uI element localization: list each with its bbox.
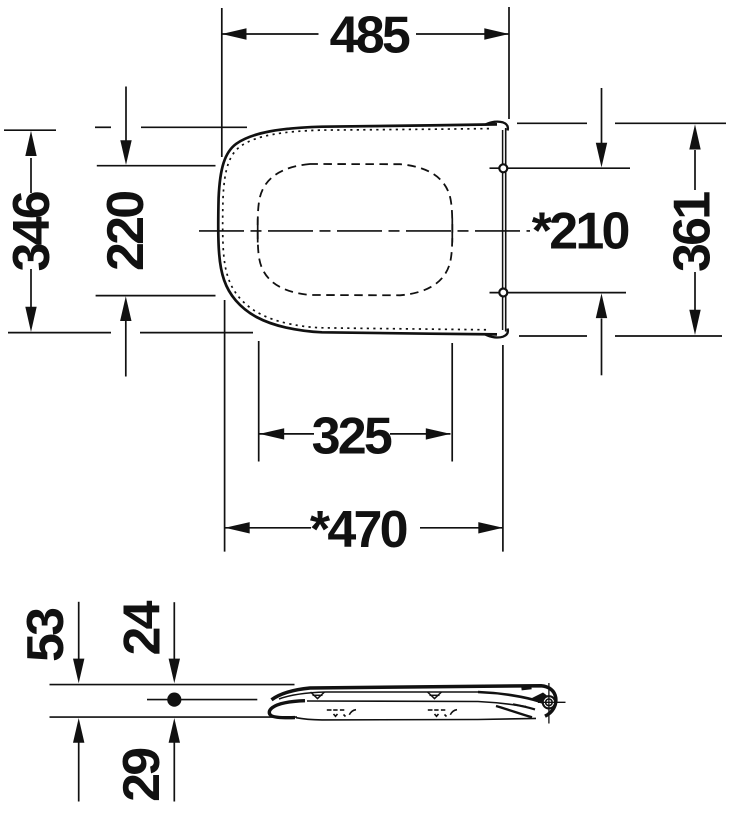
svg-text:325: 325: [312, 408, 392, 466]
svg-text:220: 220: [97, 192, 155, 271]
svg-text:485: 485: [330, 6, 410, 64]
svg-text:361: 361: [663, 192, 721, 272]
svg-text:*210: *210: [532, 202, 629, 260]
svg-text:346: 346: [3, 191, 61, 271]
svg-text:29: 29: [113, 749, 171, 802]
svg-text:*470: *470: [310, 501, 407, 559]
svg-text:53: 53: [17, 608, 75, 662]
svg-text:24: 24: [114, 600, 172, 655]
